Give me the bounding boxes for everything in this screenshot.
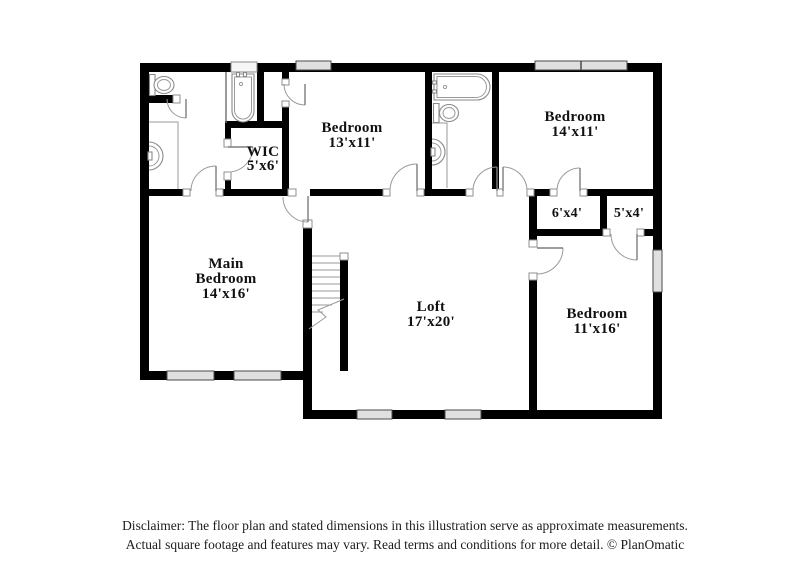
sink-icon <box>431 139 445 165</box>
wall-tub-right <box>257 72 264 127</box>
wall-step <box>303 371 312 419</box>
room-label-closet-5x4: 5'x4' <box>614 206 644 221</box>
window-top-bed13 <box>296 61 331 70</box>
toilet-icon <box>150 75 175 96</box>
room-label-main-bedroom: MainBedroom14'x16' <box>196 256 257 302</box>
sink-icon <box>148 142 163 170</box>
wall-hall-g <box>580 189 653 196</box>
bathtub-vertical <box>226 72 254 123</box>
door-bath-left <box>191 166 216 191</box>
room-label-closet-6x4: 6'x4' <box>552 206 582 221</box>
wall-bed11-left-lower <box>529 273 537 410</box>
wall-bath2-right <box>492 72 499 189</box>
room-label-bedroom-14x11: Bedroom14'x11' <box>545 109 606 140</box>
door-bed13-hall <box>390 164 417 191</box>
wall-bed11-left-upper <box>529 196 537 247</box>
wall-left <box>140 63 149 380</box>
toilet-icon <box>434 104 459 123</box>
disclaimer-line-2: Actual square footage and features may v… <box>10 535 800 554</box>
window-right-wall <box>653 250 662 292</box>
wall-bottom-main-bedroom <box>140 371 312 380</box>
door-closet-5x4 <box>611 234 637 260</box>
floor-plan-illustration: Bedroom13'x11' Bedroom14'x11' WIC5'x6' M… <box>0 0 800 582</box>
door-closet-6x4 <box>557 168 580 191</box>
wall-wic-top <box>225 121 289 128</box>
wall-main-bedroom-right <box>303 228 312 371</box>
wall-right <box>653 63 662 419</box>
room-label-wic: WIC5'x6' <box>247 144 280 174</box>
wall-hall-c <box>310 189 385 196</box>
wall-closet-bottom-left <box>537 229 610 236</box>
wall-hall-d <box>417 189 473 196</box>
window-loft-2 <box>445 410 481 419</box>
bathtub-icon <box>433 74 491 100</box>
bathroom-left-fixtures <box>148 75 178 190</box>
window-main-bedroom-2 <box>234 371 281 380</box>
window-tub <box>231 62 257 72</box>
wall-stairs-right <box>340 255 348 371</box>
window-main-bedroom-1 <box>167 371 214 380</box>
room-label-bedroom-13x11: Bedroom13'x11' <box>322 120 383 151</box>
bathroom-center-fixtures <box>431 74 490 188</box>
disclaimer-line-1: Disclaimer: The floor plan and stated di… <box>10 516 800 535</box>
window-loft-1 <box>357 410 392 419</box>
room-label-bedroom-11x16: Bedroom11'x16' <box>567 306 628 337</box>
wall-bed13-right <box>425 72 432 189</box>
staircase-icon <box>309 256 344 329</box>
wall-bed13-left <box>282 106 289 196</box>
room-labels: Bedroom13'x11' Bedroom14'x11' WIC5'x6' M… <box>196 109 645 337</box>
door-bed14 <box>503 167 527 191</box>
floor-plan-page: Bedroom13'x11' Bedroom14'x11' WIC5'x6' M… <box>0 0 800 582</box>
door-bed11 <box>537 248 563 274</box>
room-label-loft: Loft17'x20' <box>407 299 455 330</box>
disclaimer: Disclaimer: The floor plan and stated di… <box>10 516 800 554</box>
door-main-bedroom <box>283 196 308 222</box>
